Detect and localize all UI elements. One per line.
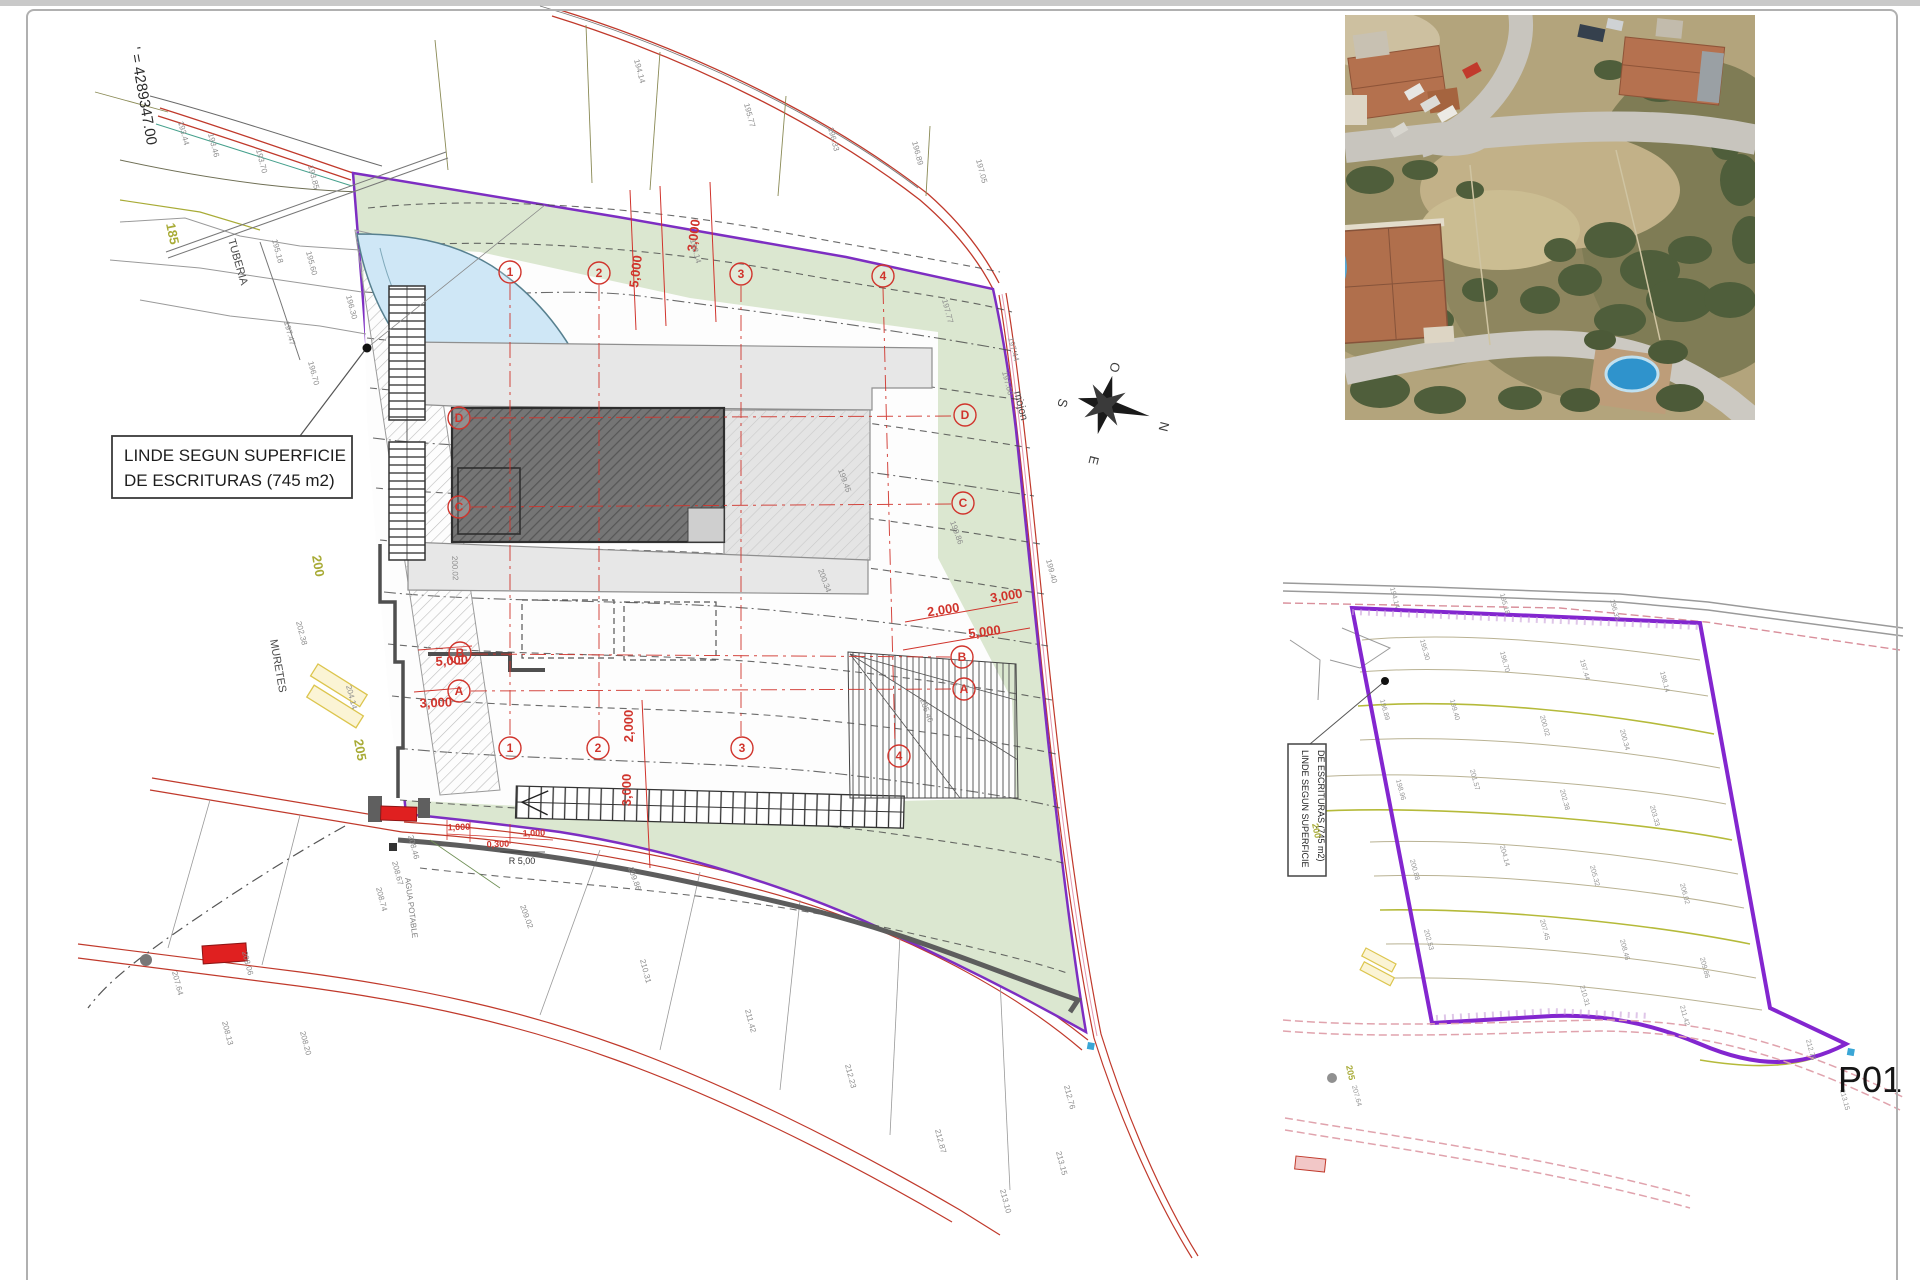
compass: O N S E (1043, 350, 1184, 481)
detail-muretes (1356, 948, 1401, 986)
svg-text:196.89: 196.89 (910, 140, 925, 166)
svg-text:211.42: 211.42 (743, 1008, 758, 1034)
svg-text:199.40: 199.40 (1448, 699, 1460, 722)
svg-text:185: 185 (163, 222, 182, 246)
svg-text:C: C (959, 496, 968, 510)
svg-text:202.53: 202.53 (1422, 929, 1434, 952)
svg-text:S: S (1054, 397, 1071, 409)
muretes-label: MURETES (267, 638, 288, 693)
svg-text:200.02: 200.02 (1538, 715, 1550, 738)
svg-text:197.05: 197.05 (974, 158, 989, 184)
svg-text:206.02: 206.02 (1678, 883, 1690, 906)
svg-text:C: C (455, 500, 464, 514)
svg-text:196.33: 196.33 (826, 126, 841, 152)
svg-text:198.14: 198.14 (1658, 671, 1670, 694)
detail-survey-dot (1327, 1073, 1337, 1083)
svg-text:197.47: 197.47 (282, 320, 297, 346)
svg-text:E: E (1085, 454, 1102, 466)
aerial-photo (1280, 10, 1820, 424)
svg-text:3,000: 3,000 (419, 694, 452, 710)
svg-text:196.89: 196.89 (1378, 699, 1390, 722)
svg-text:212.76: 212.76 (1062, 1084, 1077, 1110)
svg-text:195.60: 195.60 (304, 250, 319, 276)
svg-text:196.70: 196.70 (1498, 651, 1510, 674)
svg-text:195.18: 195.18 (270, 238, 285, 264)
svg-text:211.42: 211.42 (1678, 1005, 1690, 1027)
svg-text:195.77: 195.77 (742, 102, 757, 128)
detail-boundary (1352, 608, 1846, 1062)
detail-linde-label-box: LINDE SEGUN SUPERFICIE DE ESCRITURAS (74… (1288, 677, 1389, 876)
svg-text:D: D (961, 408, 970, 422)
compass-star (1071, 369, 1157, 445)
svg-text:D: D (455, 411, 464, 425)
sheet-number: P01 (1838, 1059, 1902, 1100)
svg-text:208.13: 208.13 (220, 1020, 235, 1046)
svg-text:205: 205 (1344, 1064, 1357, 1081)
radius-label: R 5,00 (509, 856, 536, 866)
svg-text:207.64: 207.64 (1350, 1085, 1362, 1108)
tuberia-label: TUBERIA (225, 238, 250, 288)
svg-text:5,000: 5,000 (435, 652, 468, 669)
svg-text:203.33: 203.33 (1648, 805, 1660, 828)
svg-text:2,000: 2,000 (621, 710, 636, 743)
svg-text:213.10: 213.10 (998, 1188, 1013, 1214)
svg-text:204.14: 204.14 (1498, 845, 1510, 868)
svg-text:3,000: 3,000 (619, 774, 634, 807)
svg-text:194.14: 194.14 (632, 58, 647, 84)
svg-text:198.96: 198.96 (1394, 779, 1406, 802)
svg-text:193.44: 193.44 (176, 120, 191, 146)
site-plan: 12341234DCBADCBA 5,0003,0002,0003,0005,0… (78, 6, 1198, 1258)
svg-text:N: N (1156, 420, 1173, 433)
svg-text:208.20: 208.20 (298, 1030, 313, 1056)
muretes-outline (300, 664, 374, 728)
mojon-dot (363, 344, 372, 353)
svg-text:196.30: 196.30 (344, 294, 359, 320)
svg-text:4: 4 (880, 269, 887, 283)
svg-text:A: A (960, 682, 969, 696)
coordinate-label: ' = 4289347.00 (126, 46, 160, 147)
svg-text:195.30: 195.30 (1418, 639, 1430, 662)
top-parcel-dividers (95, 25, 930, 196)
svg-text:207.64: 207.64 (170, 970, 185, 996)
svg-text:3: 3 (738, 267, 745, 281)
svg-text:2: 2 (595, 741, 602, 755)
svg-text:O: O (1106, 361, 1123, 374)
detail-contours (1290, 628, 1830, 1066)
svg-text:3: 3 (739, 741, 746, 755)
svg-text:197.44: 197.44 (1578, 659, 1590, 682)
svg-text:LINDE SEGUN SUPERFICIE: LINDE SEGUN SUPERFICIE (124, 446, 346, 465)
svg-text:2: 2 (596, 266, 603, 280)
detail-plan: LINDE SEGUN SUPERFICIE DE ESCRITURAS (74… (1283, 583, 1905, 1208)
svg-text:207.45: 207.45 (1538, 919, 1550, 942)
drawing-sheet: 12341234DCBADCBA 5,0003,0002,0003,0005,0… (0, 0, 1920, 1280)
svg-text:202.38: 202.38 (1558, 789, 1570, 812)
detail-elevation-labels: 194.14195.18196.33195.30196.70197.44198.… (1350, 587, 1850, 1112)
svg-text:208.74: 208.74 (374, 886, 389, 912)
svg-text:200.02: 200.02 (450, 556, 460, 581)
aerial-villa-left (1324, 218, 1454, 350)
svg-text:B: B (958, 650, 967, 664)
svg-text:212.87: 212.87 (933, 1128, 948, 1154)
svg-text:208.06: 208.06 (240, 950, 255, 976)
svg-text:A: A (455, 684, 464, 698)
svg-text:195.18: 195.18 (1498, 593, 1510, 616)
svg-text:209.02: 209.02 (518, 904, 535, 931)
svg-text:200.34: 200.34 (1618, 729, 1630, 752)
svg-text:213.15: 213.15 (1054, 1150, 1069, 1176)
svg-text:212.23: 212.23 (843, 1063, 858, 1089)
svg-text:208.46: 208.46 (1618, 939, 1630, 962)
svg-text:208.67: 208.67 (390, 860, 405, 886)
svg-text:DE ESCRITURAS (745 m2): DE ESCRITURAS (745 m2) (1316, 750, 1326, 862)
svg-text:LINDE SEGUN SUPERFICIE: LINDE SEGUN SUPERFICIE (1300, 750, 1310, 868)
hatched-wedge (848, 652, 1018, 798)
svg-text:201.57: 201.57 (1468, 769, 1480, 792)
svg-text:194.14: 194.14 (1388, 587, 1400, 610)
detail-tip-marker (1847, 1048, 1855, 1056)
svg-text:DE ESCRITURAS (745 m2): DE ESCRITURAS (745 m2) (124, 471, 335, 490)
drawing-canvas: 12341234DCBADCBA 5,0003,0002,0003,0005,0… (0, 0, 1920, 1280)
svg-text:1: 1 (507, 265, 514, 279)
svg-text:200: 200 (309, 554, 328, 578)
svg-text:205: 205 (351, 738, 370, 762)
svg-text:1: 1 (507, 741, 514, 755)
svg-text:210.31: 210.31 (638, 958, 653, 984)
svg-text:199.40: 199.40 (1044, 558, 1059, 584)
svg-text:205.32: 205.32 (1588, 865, 1600, 888)
svg-text:202.38: 202.38 (294, 620, 309, 646)
svg-text:4: 4 (896, 749, 903, 763)
svg-text:0,300: 0,300 (486, 839, 509, 850)
agua-potable-label: AGUA POTABLE (403, 877, 419, 938)
svg-text:210.31: 210.31 (1578, 985, 1590, 1008)
detail-red-marker (1295, 1156, 1326, 1172)
svg-text:208.46: 208.46 (406, 834, 421, 860)
utility-arc (88, 826, 345, 1008)
svg-text:1,000: 1,000 (522, 828, 545, 839)
svg-text:193.85: 193.85 (306, 164, 321, 190)
building (452, 408, 724, 542)
svg-text:200.88: 200.88 (1408, 859, 1420, 882)
svg-text:196.70: 196.70 (306, 360, 321, 386)
svg-text:1,000: 1,000 (447, 822, 470, 833)
